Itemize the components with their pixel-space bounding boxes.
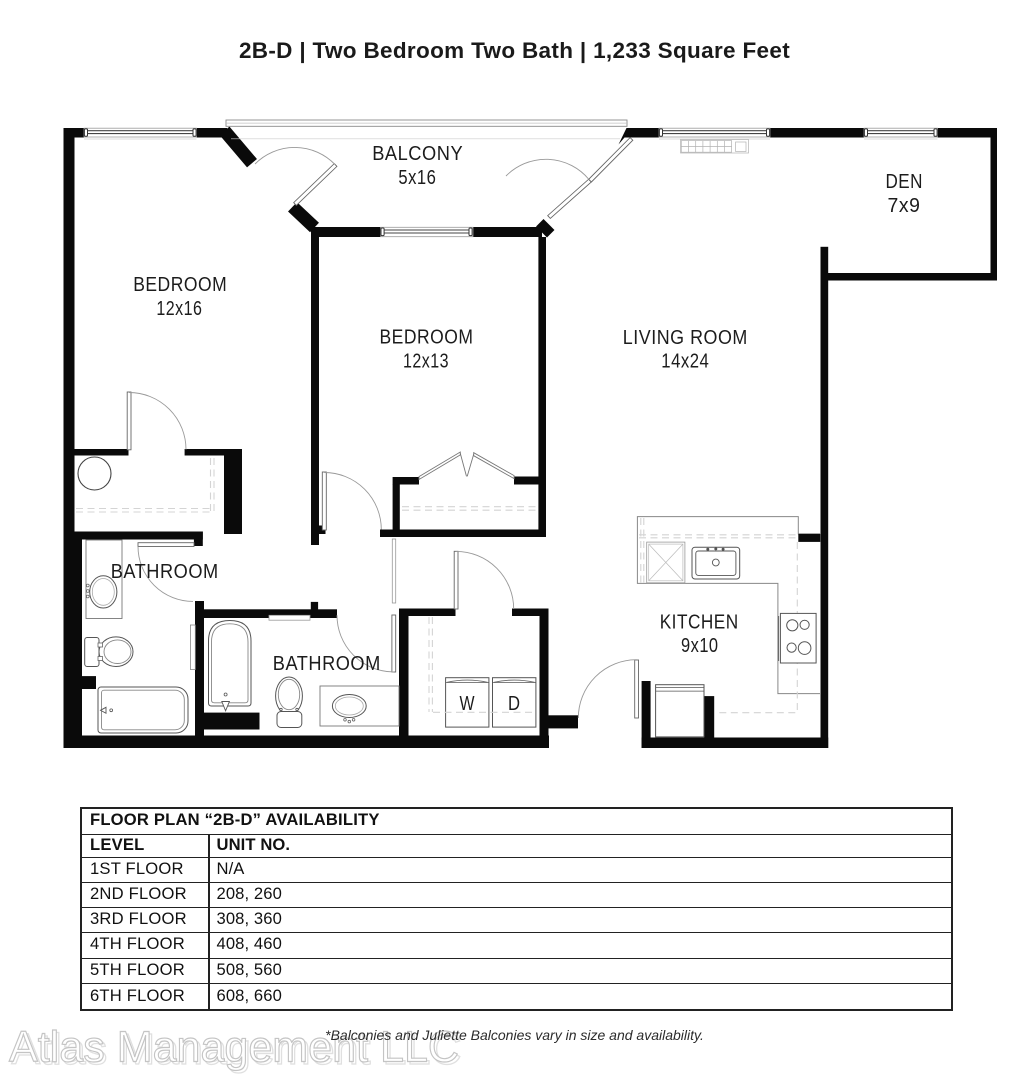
svg-text:12x16: 12x16 [156,298,202,320]
svg-text:BALCONY: BALCONY [372,143,463,165]
svg-text:BEDROOM: BEDROOM [133,274,227,296]
svg-text:12x13: 12x13 [403,351,449,373]
svg-text:BEDROOM: BEDROOM [380,327,474,349]
svg-text:BATHROOM: BATHROOM [273,653,381,675]
svg-text:5x16: 5x16 [398,167,436,189]
svg-text:D: D [508,693,521,715]
svg-text:DEN: DEN [885,171,923,193]
svg-text:KITCHEN: KITCHEN [660,611,739,633]
svg-text:W: W [459,693,475,715]
svg-text:9x10: 9x10 [681,635,719,657]
svg-text:14x24: 14x24 [661,351,709,373]
svg-text:LIVING ROOM: LIVING ROOM [623,327,748,349]
svg-text:7x9: 7x9 [888,195,921,217]
svg-text:BATHROOM: BATHROOM [111,561,219,583]
